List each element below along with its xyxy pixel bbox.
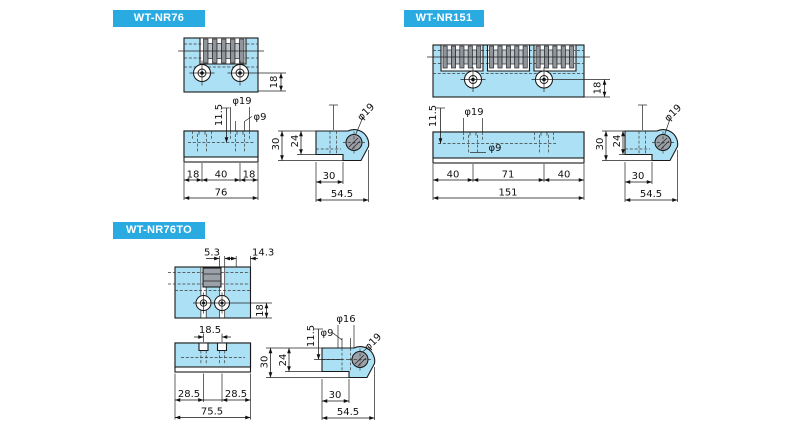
nr151-side-view: φ19 30 24 30 54.5 [595,103,684,202]
catalog-dimension-drawing: WT-NR76 WT-NR151 WT-NR76TO [0,0,800,429]
dim-edge-left: 28.5 [178,389,200,400]
dim-edge-right: 40 [558,170,571,181]
dim-side-height: 30 [271,138,282,151]
wt-nr76-drawing: 18 11.5 φ19 [0,0,400,215]
dim-side-len: 30 [323,171,336,182]
dim-side-total: 54.5 [337,407,359,418]
dim-hole-pitch: 71 [502,170,515,181]
dim-slot-span: 18.5 [199,325,221,336]
dim-counterbore: φ19 [232,96,251,107]
dim-side-len: 30 [632,171,645,182]
nr76-front-view: 11.5 φ19 φ9 18 40 18 76 [184,96,266,200]
dim-side-len: 30 [329,390,342,401]
dim-edge-right: 18 [243,170,256,181]
dim-side-step: 24 [612,135,623,148]
nr151-top-view: 18 [427,45,610,97]
nr76to-side-view: 11.5 φ9 φ16 φ19 30 24 [260,314,385,420]
dim-side-step: 24 [290,135,301,148]
dim-total-width: 151 [498,188,517,199]
dim-hole-offset: 11.5 [306,325,317,347]
dim-hole-dia: φ9 [489,143,502,154]
nr76-top-view: 18 [178,38,286,92]
dim-slot-width: 5.3 [204,248,220,259]
dim-total-width: 76 [215,188,228,199]
nr76to-top-view: 5.3 14.3 18 [168,248,274,319]
dim-side-step: 24 [278,354,289,367]
wt-nr76to-drawing: 5.3 14.3 18 [100,215,400,429]
dim-roller-dia: φ19 [363,332,384,353]
nr76-side-view: φ19 30 24 30 54.5 [271,102,377,202]
dim-top-height: 18 [269,76,280,89]
dim-edge-left: 18 [187,170,200,181]
dim-hole-dia: φ9 [321,328,334,339]
dim-roller-dia: φ19 [663,103,684,124]
dim-roller-dia: φ19 [356,102,377,123]
dim-counterbore: φ16 [336,314,355,325]
wt-nr151-drawing: 18 11.5 φ19 [400,0,800,215]
dim-hole-pitch: 40 [215,170,228,181]
dim-total-width: 75.5 [201,407,223,418]
dim-top-height: 18 [593,82,604,95]
dim-side-total: 54.5 [640,189,662,200]
dim-side-total: 54.5 [331,189,353,200]
dim-edge-right: 28.5 [225,389,247,400]
dim-top-height: 18 [255,304,266,317]
dim-side-height: 30 [260,356,271,369]
dim-counterbore: φ19 [464,107,483,118]
dim-hole-dia: φ9 [254,112,267,123]
dim-side-height: 30 [595,138,606,151]
dim-hole-offset: 11.5 [214,104,225,126]
nr76to-front-view: 18.5 28.5 28.5 75.5 [175,325,251,420]
dim-slot-offset: 14.3 [252,248,274,259]
dim-edge-left: 40 [447,170,460,181]
nr151-front-view: 11.5 φ19 φ9 40 71 40 151 [428,105,584,200]
